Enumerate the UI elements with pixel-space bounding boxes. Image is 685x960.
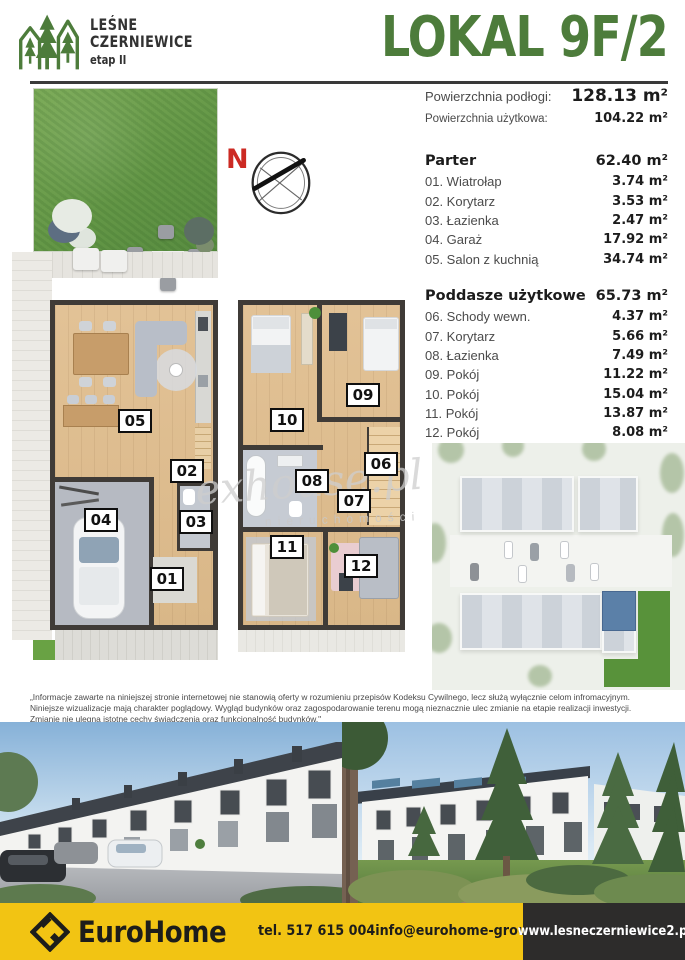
room-area: 3.53 m²	[612, 194, 668, 209]
bed-blanket	[251, 345, 291, 373]
highlighted-unit	[603, 592, 635, 630]
pine-trees-logo-icon	[16, 8, 82, 76]
room-area: 5.66 m²	[612, 329, 668, 344]
room-name: 12. Pokój	[425, 425, 479, 440]
site-building	[460, 593, 602, 650]
room-row: 09. Pokój11.22 m²	[425, 365, 668, 384]
site-tree	[432, 523, 446, 563]
brand-line-1: LEŚNE	[90, 16, 218, 33]
room-name: 05. Salon z kuchnią	[425, 252, 538, 267]
floor-area-label: Powierzchnia podłogi:	[425, 89, 551, 104]
room-row: 07. Korytarz5.66 m²	[425, 326, 668, 345]
attic-room-list: 06. Schody wewn.4.37 m²07. Korytarz5.66 …	[425, 307, 668, 443]
room-area: 7.49 m²	[612, 348, 668, 363]
room-name: 03. Łazienka	[425, 213, 499, 228]
chair	[79, 321, 92, 331]
compass-icon	[247, 147, 313, 217]
sidewalk-paving	[12, 252, 52, 640]
eurohome-diamond-icon	[30, 912, 70, 952]
site-tree	[502, 443, 524, 457]
attic-title: Poddasze użytkowe	[425, 288, 586, 304]
chair	[103, 321, 116, 331]
info-column: Powierzchnia podłogi: 128.13 m² Powierzc…	[425, 86, 668, 443]
site-plan	[432, 443, 685, 690]
room-area: 13.87 m²	[603, 406, 668, 421]
bed-pillows	[253, 317, 289, 329]
plant	[309, 307, 321, 319]
room-area: 17.92 m²	[603, 232, 668, 247]
stool	[67, 395, 79, 404]
ground-floor-plan	[50, 300, 218, 630]
brand-line-2: CZERNIEWICE	[90, 33, 218, 50]
eurohome-logo: EuroHome	[30, 911, 250, 953]
green-patch	[33, 640, 55, 660]
compass-north-letter: N	[226, 144, 249, 175]
bed-blanket	[269, 545, 307, 615]
garden-plan-image	[33, 88, 218, 252]
brand-logo: LEŚNE CZERNIEWICE etap II	[16, 6, 246, 78]
car-roof	[79, 567, 119, 605]
attic-floor-plan	[238, 300, 405, 630]
room-name: 06. Schody wewn.	[425, 309, 531, 324]
attic-total: 65.73 m²	[596, 288, 668, 304]
driveway-paving	[55, 630, 218, 660]
footer-phone: tel. 517 615 004	[258, 923, 375, 939]
bathtub	[246, 455, 266, 517]
stairs	[195, 427, 211, 469]
room-row: 05. Salon z kuchnią34.74 m²	[425, 250, 668, 269]
site-tree	[582, 443, 606, 461]
site-car	[504, 541, 513, 559]
chair	[103, 377, 116, 387]
dining-table	[73, 333, 129, 375]
garden-pouf	[160, 277, 176, 291]
footer-website: www.lesneczerniewice2.pl	[517, 924, 685, 939]
room-area: 2.47 m²	[612, 213, 668, 228]
room-row: 10. Pokój15.04 m²	[425, 385, 668, 404]
flyer-page: LEŚNE CZERNIEWICE etap II LOKAL 9F/2 N	[0, 0, 685, 960]
sofa	[135, 321, 157, 397]
interior-wall	[317, 305, 322, 417]
room-row: 08. Łazienka7.49 m²	[425, 346, 668, 365]
room-area: 3.74 m²	[612, 174, 668, 189]
site-building	[460, 476, 574, 532]
ground-floor-title: Parter	[425, 153, 476, 169]
garden-pouf	[158, 225, 174, 239]
site-car	[530, 543, 539, 561]
room-name: 09. Pokój	[425, 367, 479, 382]
exterior-render-garden	[342, 722, 685, 903]
stool	[103, 395, 115, 404]
room-name: 11. Pokój	[425, 406, 478, 421]
site-building	[578, 476, 638, 532]
desk	[329, 313, 347, 351]
room-area: 15.04 m²	[603, 387, 668, 402]
wardrobe	[301, 313, 313, 365]
entry-hall-floor	[153, 557, 197, 603]
room-name: 01. Wiatrołap	[425, 174, 502, 189]
unit-garden	[604, 659, 638, 687]
townhouses-front-illustration	[0, 722, 342, 903]
room-area: 11.22 m²	[603, 367, 668, 382]
bed-pillows	[365, 319, 397, 329]
usable-area-value: 104.22 m²	[594, 111, 668, 126]
site-car	[590, 563, 599, 581]
exterior-render-front	[0, 722, 342, 903]
header-divider	[30, 81, 668, 84]
room-name: 08. Łazienka	[425, 348, 499, 363]
site-tree	[432, 623, 452, 653]
room-row: 02. Korytarz3.53 m²	[425, 191, 668, 210]
room-row: 03. Łazienka2.47 m²	[425, 211, 668, 230]
kitchen-island	[63, 405, 119, 427]
garden-bush	[184, 217, 214, 245]
site-car	[566, 564, 575, 582]
footer-website-box: www.lesneczerniewice2.pl	[523, 903, 685, 960]
room-name: 07. Korytarz	[425, 329, 495, 344]
stool	[85, 395, 97, 404]
chair	[79, 377, 92, 387]
usable-area-row: Powierzchnia użytkowa: 104.22 m²	[425, 111, 668, 126]
ground-floor-room-list: 01. Wiatrołap3.74 m²02. Korytarz3.53 m²0…	[425, 172, 668, 269]
washbasin	[277, 455, 303, 467]
room-area: 4.37 m²	[612, 309, 668, 324]
usable-area-label: Powierzchnia użytkowa:	[425, 113, 548, 125]
bed	[359, 537, 399, 599]
room-name: 10. Pokój	[425, 387, 479, 402]
room-name: 04. Garaż	[425, 232, 482, 247]
interior-wall	[317, 417, 405, 422]
room-name: 02. Korytarz	[425, 194, 495, 209]
room-row: 06. Schody wewn.4.37 m²	[425, 307, 668, 326]
townhouses-garden-illustration	[342, 722, 685, 903]
bed-pillows	[253, 545, 265, 615]
floor-area-value: 128.13 m²	[571, 86, 668, 106]
room-row: 04. Garaż17.92 m²	[425, 230, 668, 249]
interior-wall	[323, 532, 328, 625]
plant	[329, 543, 339, 553]
floor-area-row: Powierzchnia podłogi: 128.13 m²	[425, 86, 668, 106]
sink	[198, 375, 208, 387]
site-tree	[438, 443, 464, 463]
garden-bush	[52, 199, 92, 233]
room-area: 8.08 m²	[612, 425, 668, 440]
ground-floor-total: 62.40 m²	[596, 153, 668, 169]
stove	[198, 317, 208, 331]
car-windshield	[79, 537, 119, 563]
site-car	[470, 563, 479, 581]
site-tree	[660, 453, 684, 493]
paving-below-attic-plan	[238, 630, 405, 652]
room-row: 11. Pokój13.87 m²	[425, 404, 668, 423]
site-car	[518, 565, 527, 583]
brand-text: LEŚNE CZERNIEWICE etap II	[90, 16, 250, 67]
page-title: LOKAL 9F/2	[381, 6, 668, 70]
site-tree	[528, 665, 552, 687]
brand-line-3: etap II	[90, 52, 218, 67]
disclaimer-text: „Informacje zawarte na niniejszej stroni…	[30, 692, 660, 725]
toilet	[183, 489, 195, 505]
site-car	[560, 541, 569, 559]
attic-header: Poddasze użytkowe 65.73 m²	[425, 288, 668, 304]
room-area: 34.74 m²	[603, 252, 668, 267]
terrace-lounger	[73, 248, 99, 270]
ground-floor-header: Parter 62.40 m²	[425, 153, 668, 169]
terrace-lounger	[101, 250, 127, 272]
coffee-table	[169, 363, 183, 377]
room-row: 12. Pokój8.08 m²	[425, 423, 668, 442]
desk	[339, 573, 353, 591]
room-row: 01. Wiatrołap3.74 m²	[425, 172, 668, 191]
eurohome-name: EuroHome	[78, 915, 226, 949]
unit-garden	[638, 591, 670, 687]
